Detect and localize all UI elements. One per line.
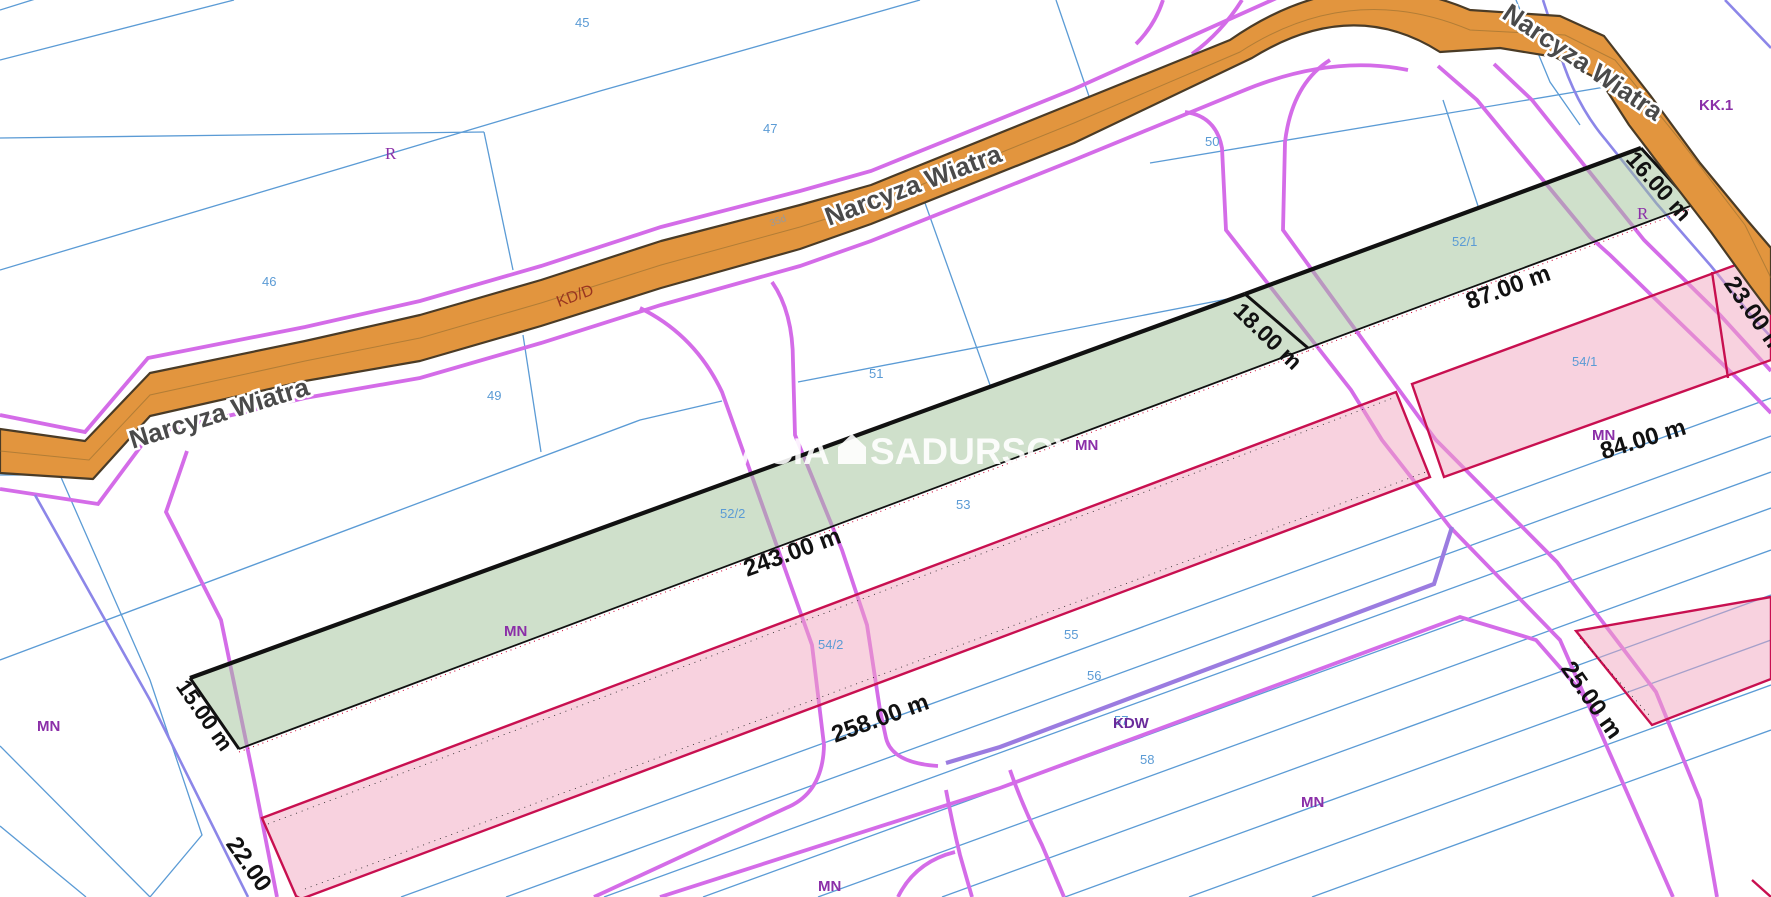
svg-text:52/2: 52/2	[720, 506, 745, 521]
svg-text:55: 55	[1064, 627, 1078, 642]
svg-text:MN: MN	[1075, 437, 1098, 454]
svg-text:BRACIA: BRACIA	[686, 431, 830, 472]
svg-text:54/2: 54/2	[818, 637, 843, 652]
svg-text:47: 47	[763, 121, 777, 136]
svg-text:MN: MN	[1301, 794, 1324, 811]
svg-text:53: 53	[956, 497, 970, 512]
svg-text:MN: MN	[818, 878, 841, 895]
svg-text:56: 56	[1087, 668, 1101, 683]
svg-text:51: 51	[869, 366, 883, 381]
svg-text:KDW: KDW	[1113, 715, 1150, 732]
svg-text:R: R	[1637, 204, 1649, 223]
svg-text:R: R	[385, 144, 397, 163]
svg-text:MN: MN	[504, 623, 527, 640]
svg-text:58: 58	[1140, 752, 1154, 767]
svg-text:MN: MN	[37, 718, 60, 735]
svg-text:KK.1: KK.1	[1699, 97, 1733, 114]
svg-text:52/1: 52/1	[1452, 234, 1477, 249]
svg-text:50: 50	[1205, 134, 1219, 149]
svg-text:46: 46	[262, 274, 276, 289]
svg-text:MN: MN	[1592, 427, 1615, 444]
svg-text:54/1: 54/1	[1572, 354, 1597, 369]
svg-text:49: 49	[487, 388, 501, 403]
svg-text:SADURSCY: SADURSCY	[870, 431, 1078, 472]
svg-text:45: 45	[575, 15, 589, 30]
